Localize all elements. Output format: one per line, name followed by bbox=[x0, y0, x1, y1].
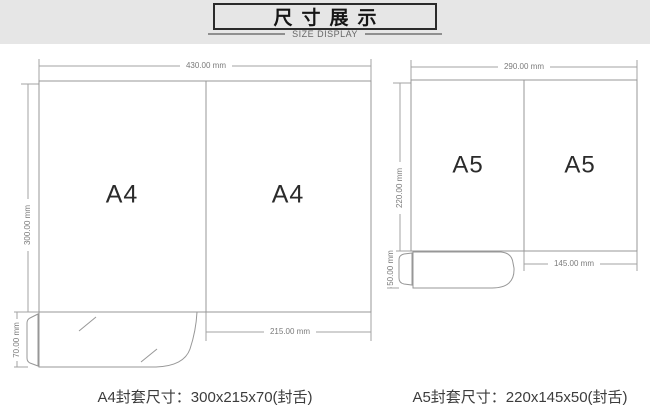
a4-right-panel-label: A4 bbox=[272, 181, 305, 209]
size-display-page: 尺寸展示 SIZE DISPLAY 430.00 mm bbox=[0, 0, 650, 418]
a5-panel-dimension: 145.00 mm bbox=[524, 251, 637, 271]
a4-folder-outline bbox=[39, 81, 371, 312]
a4-flap-tab bbox=[27, 314, 38, 366]
a4-width-dimension: 430.00 mm bbox=[39, 59, 371, 81]
a5-width-dimension: 290.00 mm bbox=[411, 60, 637, 80]
a4-height-label: 300.00 mm bbox=[23, 205, 32, 245]
a5-width-label: 290.00 mm bbox=[504, 62, 544, 71]
a4-panel-label: 215.00 mm bbox=[270, 327, 310, 336]
a5-flap-dimension: 50.00 mm bbox=[386, 249, 399, 288]
a4-flap-label: 70.00 mm bbox=[12, 322, 21, 358]
a4-diagram: 430.00 mm 300.00 mm 70.00 mm bbox=[12, 59, 371, 367]
a5-flap-label: 50.00 mm bbox=[386, 250, 395, 286]
a5-panel-label: 145.00 mm bbox=[554, 259, 594, 268]
a5-height-dimension: 220.00 mm bbox=[387, 83, 411, 251]
a5-flap-tab bbox=[399, 253, 412, 285]
a5-left-panel-label: A5 bbox=[452, 151, 483, 178]
a5-height-label: 220.00 mm bbox=[395, 168, 404, 208]
a4-width-label: 430.00 mm bbox=[186, 61, 226, 70]
folder-size-diagrams: 430.00 mm 300.00 mm 70.00 mm bbox=[0, 0, 650, 418]
a4-flap-dimension: 70.00 mm bbox=[12, 312, 28, 367]
a4-flap bbox=[39, 312, 197, 367]
a5-diagram: 290.00 mm 220.00 mm 50.00 mm bbox=[386, 60, 637, 288]
a5-right-panel-label: A5 bbox=[564, 151, 595, 178]
a5-flap bbox=[413, 252, 514, 288]
a4-left-panel-label: A4 bbox=[106, 181, 139, 209]
a4-height-dimension: 300.00 mm bbox=[14, 84, 39, 312]
a4-panel-dimension: 215.00 mm bbox=[206, 312, 371, 341]
a4-size-caption: A4封套尺寸：300x215x70(封舌) bbox=[40, 386, 370, 407]
a5-size-caption: A5封套尺寸：220x145x50(封舌) bbox=[400, 386, 640, 407]
